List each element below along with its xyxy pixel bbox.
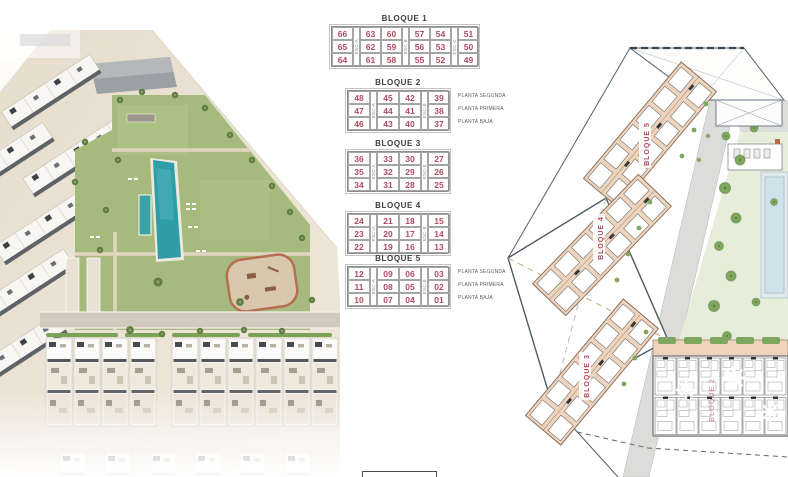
unit-cell: 55 [409, 53, 430, 66]
planta-labels-bloque-5: PLANTA SEGUNDA PLANTA PRIMERA PLANTA BAJ… [458, 266, 506, 305]
stair-divider: ESC-A [370, 91, 377, 130]
unit-column: 42 41 40 [399, 91, 421, 130]
unit-cell: 28 [399, 178, 421, 191]
unit-column: 66 65 64 [332, 27, 353, 66]
unit-column: 06 05 04 [399, 267, 421, 306]
unit-cell: 33 [377, 152, 399, 165]
unit-cell: 04 [399, 293, 421, 306]
bloque-4-table: BLOQUE 4 24 23 22 ESC-A 21 20 19 18 17 1… [347, 201, 449, 254]
unit-cell: 43 [377, 117, 399, 130]
bloque-4-label: BLOQUE 4 [598, 216, 605, 260]
bloque-3-label: BLOQUE 3 [584, 354, 591, 398]
unit-column: 21 20 19 [377, 214, 399, 253]
unit-cell: 47 [348, 104, 370, 117]
unit-cell: 12 [348, 267, 370, 280]
planta-label: PLANTA PRIMERA [458, 279, 506, 292]
stair-label: ESC-A [371, 279, 376, 294]
unit-cell: 45 [377, 91, 399, 104]
bottom-fade [0, 385, 340, 477]
stair-label: ESC-A [354, 39, 359, 54]
unit-column: 12 11 10 [348, 267, 370, 306]
unit-column: 48 47 46 [348, 91, 370, 130]
legend-box [362, 471, 437, 477]
unit-column: 33 32 31 [377, 152, 399, 191]
planta-labels-bloque-2: PLANTA SEGUNDA PLANTA PRIMERA PLANTA BAJ… [458, 90, 506, 129]
stair-label: ESC-B [403, 39, 408, 54]
stair-label: ESC-A [371, 226, 376, 241]
unit-cell: 57 [409, 27, 430, 40]
unit-column: 60 59 58 [381, 27, 402, 66]
aerial-render [0, 0, 340, 477]
planta-label: PLANTA BAJA [458, 292, 506, 305]
site-plan: BLOQUE 5 BLOQUE 4 BLOQUE 3 BLOQUE 2 [478, 40, 788, 477]
unit-cell: 62 [360, 40, 381, 53]
unit-cell: 59 [381, 40, 402, 53]
unit-cell: 30 [399, 152, 421, 165]
unit-cell: 58 [381, 53, 402, 66]
unit-cell: 06 [399, 267, 421, 280]
stair-label: ESC-A [371, 103, 376, 118]
brochure-page: BLOQUE 5 BLOQUE 4 BLOQUE 3 BLOQUE 2 BLOQ… [0, 0, 788, 477]
unit-cell: 34 [348, 178, 370, 191]
unit-cell: 24 [348, 214, 370, 227]
unit-column: 45 44 43 [377, 91, 399, 130]
unit-cell: 46 [348, 117, 370, 130]
unit-cell: 13 [428, 240, 450, 253]
unit-cell: 41 [399, 104, 421, 117]
unit-cell: 49 [458, 53, 479, 66]
table-title: BLOQUE 3 [347, 139, 449, 149]
unit-cell: 17 [399, 227, 421, 240]
unit-cell: 05 [399, 280, 421, 293]
unit-column: 09 08 07 [377, 267, 399, 306]
unit-grid: 24 23 22 ESC-A 21 20 19 18 17 16 ESC-B 1… [347, 213, 449, 254]
planta-label: PLANTA SEGUNDA [458, 90, 506, 103]
unit-column: 18 17 16 [399, 214, 421, 253]
unit-cell: 63 [360, 27, 381, 40]
unit-column: 30 29 28 [399, 152, 421, 191]
annex-xbrace [716, 100, 782, 126]
unit-cell: 09 [377, 267, 399, 280]
stair-divider: ESC-B [402, 27, 409, 66]
hedge-strips [46, 333, 332, 337]
unit-cell: 15 [428, 214, 450, 227]
table-title: BLOQUE 1 [331, 14, 478, 24]
bloque-1-table: BLOQUE 1 66 65 64 ESC-A 63 62 61 60 59 5… [331, 14, 478, 67]
unit-cell: 31 [377, 178, 399, 191]
planta-label: PLANTA BAJA [458, 116, 506, 129]
amenity-building [728, 139, 782, 170]
stair-divider: ESC-B [421, 152, 428, 191]
unit-cell: 27 [428, 152, 450, 165]
unit-cell: 53 [430, 40, 451, 53]
bloque-5-table: BLOQUE 5 12 11 10 ESC-A 09 08 07 06 05 0… [347, 254, 449, 307]
unit-column: 51 50 49 [458, 27, 479, 66]
bloque-2-table: BLOQUE 2 48 47 46 ESC-A 45 44 43 42 41 4… [347, 78, 449, 131]
unit-cell: 39 [428, 91, 450, 104]
planta-label: PLANTA PRIMERA [458, 103, 506, 116]
unit-grid: 66 65 64 ESC-A 63 62 61 60 59 58 ESC-B 5… [331, 26, 478, 67]
unit-cell: 08 [377, 280, 399, 293]
stair-divider: ESC-C [451, 27, 458, 66]
unit-cell: 64 [332, 53, 353, 66]
stair-label: ESC-B [422, 226, 427, 241]
table-title: BLOQUE 4 [347, 201, 449, 211]
unit-cell: 48 [348, 91, 370, 104]
unit-cell: 60 [381, 27, 402, 40]
table-title: BLOQUE 2 [347, 78, 449, 88]
table-title: BLOQUE 5 [347, 254, 449, 264]
unit-cell: 02 [428, 280, 450, 293]
stair-label: ESC-B [422, 164, 427, 179]
unit-column: 54 53 52 [430, 27, 451, 66]
unit-column: 27 26 25 [428, 152, 450, 191]
unit-cell: 20 [377, 227, 399, 240]
unit-cell: 23 [348, 227, 370, 240]
unit-cell: 14 [428, 227, 450, 240]
unit-cell: 22 [348, 240, 370, 253]
unit-cell: 37 [428, 117, 450, 130]
stair-label: ESC-C [452, 39, 457, 55]
unit-cell: 42 [399, 91, 421, 104]
unit-cell: 54 [430, 27, 451, 40]
unit-cell: 26 [428, 165, 450, 178]
unit-cell: 36 [348, 152, 370, 165]
unit-cell: 32 [377, 165, 399, 178]
unit-cell: 25 [428, 178, 450, 191]
unit-cell: 07 [377, 293, 399, 306]
stair-divider: ESC-B [421, 91, 428, 130]
unit-cell: 38 [428, 104, 450, 117]
unit-column: 15 14 13 [428, 214, 450, 253]
stair-divider: ESC-A [370, 152, 377, 191]
bloque-2-label: BLOQUE 2 [709, 378, 716, 422]
plan-pool [765, 177, 784, 293]
stair-label: ESC-A [371, 164, 376, 179]
planta-label: PLANTA SEGUNDA [458, 266, 506, 279]
detailed-units-block [653, 337, 788, 436]
unit-cell: 11 [348, 280, 370, 293]
stair-divider: ESC-A [370, 267, 377, 306]
unit-column: 63 62 61 [360, 27, 381, 66]
road [40, 312, 340, 328]
unit-cell: 21 [377, 214, 399, 227]
unit-grid: 12 11 10 ESC-A 09 08 07 06 05 04 ESC-B 0… [347, 266, 449, 307]
stair-label: ESC-B [422, 279, 427, 294]
stair-divider: ESC-A [370, 214, 377, 253]
stair-divider: ESC-A [353, 27, 360, 66]
unit-column: 24 23 22 [348, 214, 370, 253]
stair-divider: ESC-B [421, 214, 428, 253]
unit-grid: 36 35 34 ESC-A 33 32 31 30 29 28 ESC-B 2… [347, 151, 449, 192]
unit-column: 03 02 01 [428, 267, 450, 306]
unit-cell: 56 [409, 40, 430, 53]
unit-column: 36 35 34 [348, 152, 370, 191]
unit-cell: 52 [430, 53, 451, 66]
unit-cell: 29 [399, 165, 421, 178]
unit-cell: 40 [399, 117, 421, 130]
unit-cell: 61 [360, 53, 381, 66]
unit-cell: 51 [458, 27, 479, 40]
unit-cell: 19 [377, 240, 399, 253]
unit-cell: 03 [428, 267, 450, 280]
stair-label: ESC-B [422, 103, 427, 118]
unit-cell: 65 [332, 40, 353, 53]
unit-column: 39 38 37 [428, 91, 450, 130]
unit-column: 57 56 55 [409, 27, 430, 66]
stair-divider: ESC-B [421, 267, 428, 306]
bloque-5-label: BLOQUE 5 [644, 122, 651, 166]
unit-cell: 10 [348, 293, 370, 306]
unit-cell: 66 [332, 27, 353, 40]
unit-cell: 44 [377, 104, 399, 117]
bloque-3-table: BLOQUE 3 36 35 34 ESC-A 33 32 31 30 29 2… [347, 139, 449, 192]
unit-cell: 35 [348, 165, 370, 178]
unit-cell: 01 [428, 293, 450, 306]
unit-grid: 48 47 46 ESC-A 45 44 43 42 41 40 ESC-B 3… [347, 90, 449, 131]
unit-cell: 18 [399, 214, 421, 227]
unit-cell: 16 [399, 240, 421, 253]
playground [225, 253, 300, 314]
unit-cell: 50 [458, 40, 479, 53]
